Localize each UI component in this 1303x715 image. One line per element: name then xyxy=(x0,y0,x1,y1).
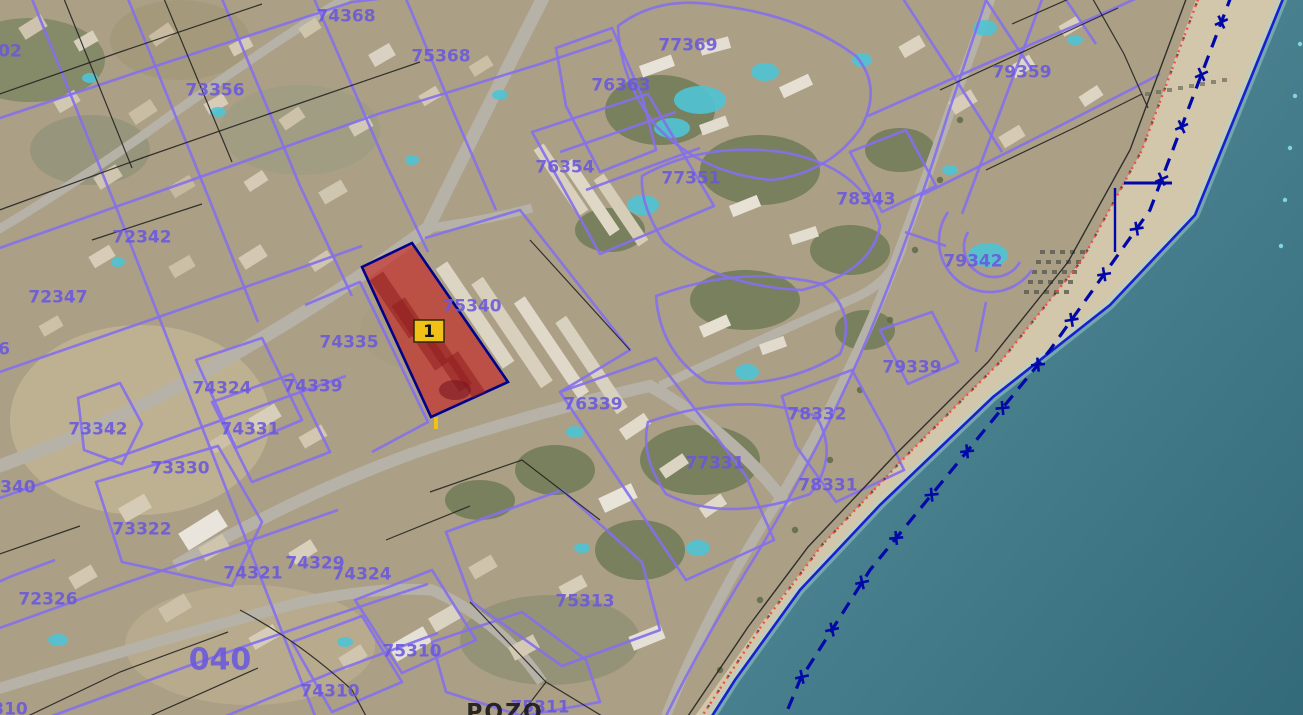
bathymetry-dot xyxy=(1288,146,1292,150)
parcel-label-POZO: POZO xyxy=(466,700,543,715)
parcel-label-02: 02 xyxy=(0,42,22,62)
maritime-cross-tick xyxy=(895,531,896,545)
parcel-label-78343: 78343 xyxy=(836,190,895,210)
swimming-pool xyxy=(48,634,68,646)
swimming-pool xyxy=(1067,35,1083,45)
bathymetry-dot xyxy=(1298,42,1302,46)
parcel-label-72347: 72347 xyxy=(28,288,87,308)
swimming-pool xyxy=(492,90,508,100)
parcel-label-2340: 2340 xyxy=(0,478,36,498)
parcel-label-76363: 76363 xyxy=(591,76,650,96)
parcel-label-75340: 75340 xyxy=(442,297,501,317)
parcel-label-76339: 76339 xyxy=(563,395,622,415)
swimming-pool xyxy=(942,165,958,175)
parcel-label-78331: 78331 xyxy=(798,476,857,496)
parcel-label-040: 040 xyxy=(189,643,252,678)
parcel-label-72326: 72326 xyxy=(18,590,77,610)
parcel-label-73322: 73322 xyxy=(112,520,171,540)
maritime-cross-tick xyxy=(1002,401,1003,415)
parcel-marker[interactable]: 1 xyxy=(414,320,444,342)
parcel-label-73356: 73356 xyxy=(185,81,244,101)
parcel-label-75310: 75310 xyxy=(382,642,441,662)
parcel-label-6: 6 xyxy=(0,340,10,360)
parcel-label-73330: 73330 xyxy=(150,459,209,479)
swimming-pool xyxy=(405,155,419,165)
swimming-pool xyxy=(735,364,759,380)
parcel-label-79359: 79359 xyxy=(992,63,1051,83)
parcel-label-74331: 74331 xyxy=(220,420,279,440)
maritime-cross-tick xyxy=(966,444,967,458)
parcel-label-74321: 74321 xyxy=(223,564,282,584)
parcel-label-74368: 74368 xyxy=(316,7,375,27)
parcel-label-73342: 73342 xyxy=(68,420,127,440)
parcel-label-74335: 74335 xyxy=(319,333,378,353)
parcel-label-72342: 72342 xyxy=(112,228,171,248)
parcel-label-74310: 74310 xyxy=(300,682,359,702)
swimming-pool xyxy=(566,426,584,438)
parcel-label-74324: 74324 xyxy=(192,379,251,399)
parcel-label-76354: 76354 xyxy=(535,158,594,178)
swimming-pool xyxy=(674,86,726,114)
parcel-label-75313: 75313 xyxy=(555,592,614,612)
bathymetry-dot xyxy=(1293,94,1297,98)
parcel-label-75368: 75368 xyxy=(411,47,470,67)
swimming-pool xyxy=(574,543,590,553)
map-viewport[interactable]: 7436875368733567736976363793597234272347… xyxy=(0,0,1303,715)
parcel-label-79342: 79342 xyxy=(943,252,1002,272)
maritime-cross-tick xyxy=(1037,358,1038,372)
parcel-label-77331: 77331 xyxy=(685,454,744,474)
parcel-label-310: 310 xyxy=(0,700,28,715)
bathymetry-dot xyxy=(1283,198,1287,202)
parcel-label-77351: 77351 xyxy=(661,169,720,189)
maritime-cross-tick xyxy=(931,488,932,502)
bathymetry-dot xyxy=(1279,244,1283,248)
cadastral-map-canvas[interactable]: 7436875368733567736976363793597234272347… xyxy=(0,0,1303,715)
swimming-pool xyxy=(686,540,710,556)
parcel-label-74339: 74339 xyxy=(283,377,342,397)
parcel-marker-label: 1 xyxy=(423,322,435,342)
parcel-label-79339: 79339 xyxy=(882,358,941,378)
parcel-label-74324: 74324 xyxy=(332,565,391,585)
swimming-pool xyxy=(751,63,779,81)
parcel-label-78332: 78332 xyxy=(787,405,846,425)
swimming-pool xyxy=(337,637,353,647)
swimming-pool xyxy=(111,257,125,267)
parcel-label-77369: 77369 xyxy=(658,36,717,56)
